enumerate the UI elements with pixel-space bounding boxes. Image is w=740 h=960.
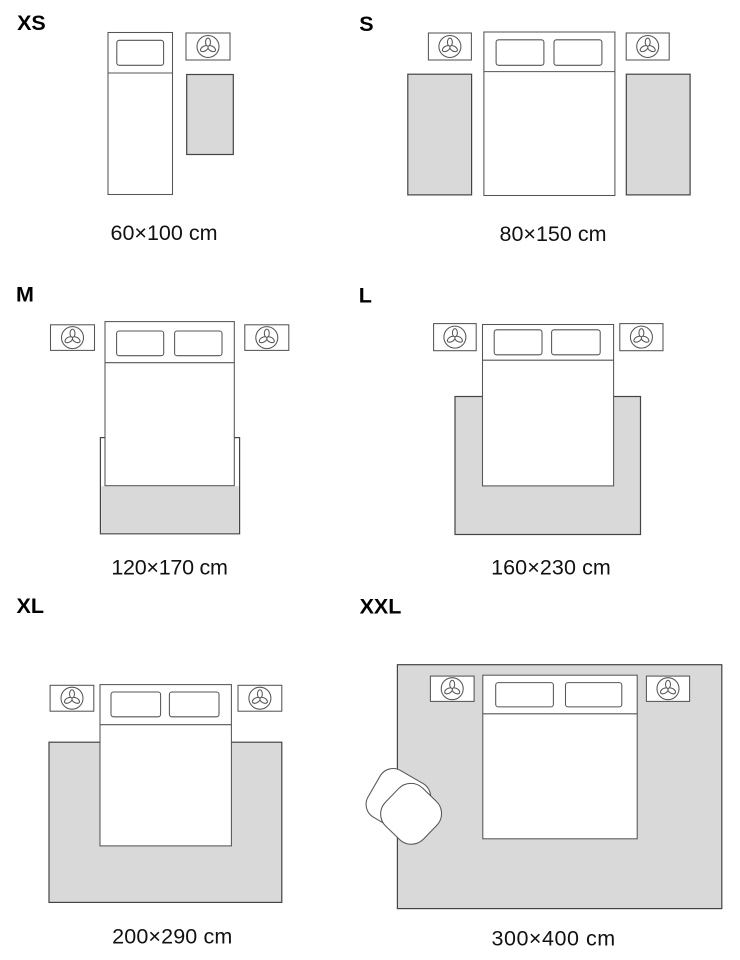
- svg-text:XXL: XXL: [360, 595, 402, 619]
- svg-text:XS: XS: [17, 11, 46, 35]
- svg-text:S: S: [359, 12, 373, 36]
- svg-text:200×290 cm: 200×290 cm: [112, 925, 232, 949]
- svg-text:80×150 cm: 80×150 cm: [500, 222, 607, 246]
- svg-text:XL: XL: [17, 594, 44, 618]
- svg-text:60×100 cm: 60×100 cm: [111, 221, 218, 245]
- svg-text:120×170 cm: 120×170 cm: [111, 556, 227, 580]
- svg-text:L: L: [359, 284, 372, 308]
- svg-text:M: M: [16, 282, 34, 306]
- svg-text:300×400 cm: 300×400 cm: [491, 926, 615, 950]
- svg-text:160×230 cm: 160×230 cm: [491, 556, 611, 580]
